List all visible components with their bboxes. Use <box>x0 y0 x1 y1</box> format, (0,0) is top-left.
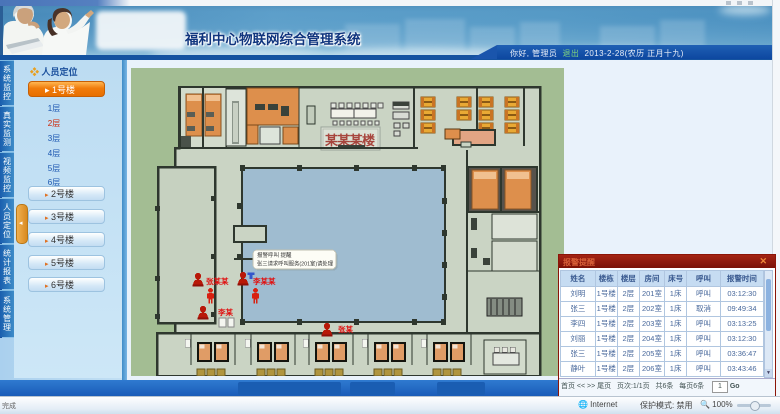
svg-text:张三请求呼叫服务(201室)请处理: 张三请求呼叫服务(201室)请处理 <box>257 260 333 268</box>
svg-text:报警呼叫 提醒: 报警呼叫 提醒 <box>257 251 292 259</box>
svg-text:张某: 张某 <box>338 324 353 334</box>
svg-text:李某: 李某 <box>217 307 233 317</box>
svg-text:李某某: 李某某 <box>252 276 276 286</box>
svg-text:张某某: 张某某 <box>206 276 229 286</box>
